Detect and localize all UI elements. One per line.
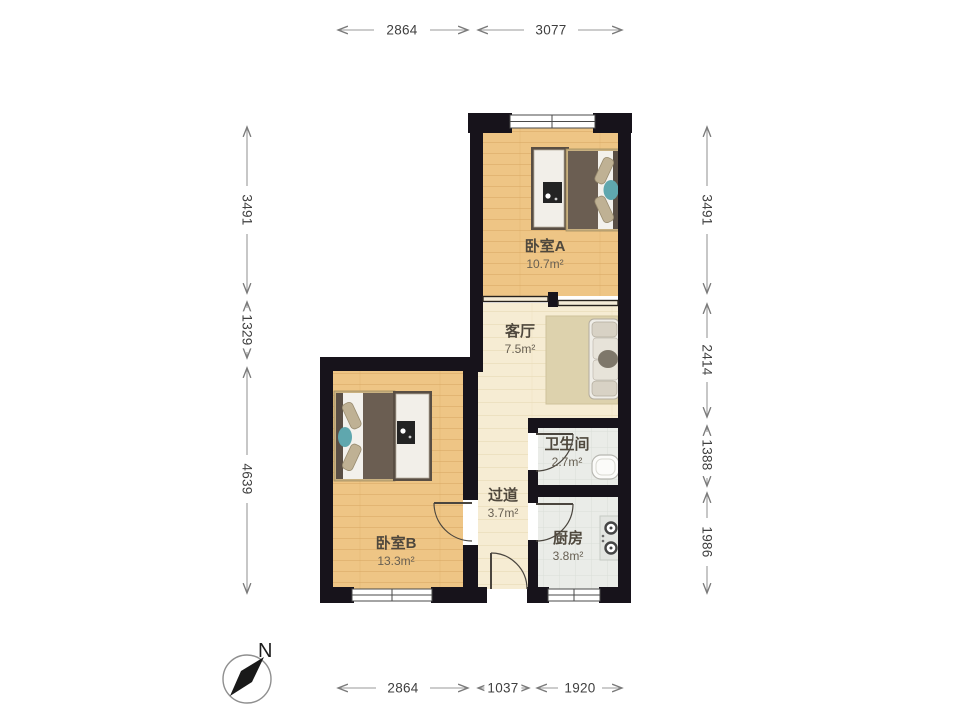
room-area-bedroom-b: 13.3m² [376,554,417,569]
bed-bedroom-a [566,149,620,231]
room-area-bedroom-a: 10.7m² [525,257,566,272]
dim-top-2: 3077 [532,23,569,38]
wardrobe-bedroom-b [393,391,432,481]
room-area-bathroom: 2.7m² [544,455,589,470]
room-name-hallway: 过道 [488,487,519,506]
room-label-living-room: 客厅 7.5m² [505,323,536,357]
room-area-kitchen: 3.8m² [553,549,584,564]
dim-left-2: 1329 [240,311,255,348]
room-name-kitchen: 厨房 [553,530,584,549]
room-name-bathroom: 卫生间 [544,436,589,455]
room-label-bedroom-b: 卧室B 13.3m² [376,535,417,569]
bathtub [592,455,619,479]
window-bedroom-a-north [510,115,595,128]
bed-bedroom-b [334,391,395,481]
dim-right-4: 1986 [700,523,715,560]
stove [600,516,619,560]
dim-right-1: 3491 [700,191,715,228]
room-label-kitchen: 厨房 3.8m² [553,530,584,564]
room-name-bedroom-a: 卧室A [525,238,566,257]
room-area-living-room: 7.5m² [505,342,536,357]
dim-left-3: 4639 [240,460,255,497]
room-name-bedroom-b: 卧室B [376,535,417,554]
window-bedroom-b-south [352,589,432,601]
dim-bottom-3: 1920 [561,681,598,696]
floor-plan-drawing [0,0,960,720]
dim-left-1: 3491 [240,191,255,228]
dim-bottom-1: 2864 [384,681,421,696]
floor-plan-canvas: 2864 3077 2864 1037 1920 3491 1329 4639 … [0,0,960,720]
north-label: N [258,640,272,663]
dim-right-3: 1388 [700,436,715,473]
dim-bottom-2: 1037 [484,681,521,696]
room-label-bedroom-a: 卧室A 10.7m² [525,238,566,272]
wardrobe-bedroom-a [531,147,569,230]
room-label-bathroom: 卫生间 2.7m² [544,436,589,470]
room-name-living-room: 客厅 [505,323,536,342]
window-kitchen-south [548,589,600,601]
dim-right-2: 2414 [700,341,715,378]
dim-top-1: 2864 [383,23,420,38]
sofa [589,319,619,399]
room-area-hallway: 3.7m² [488,506,519,521]
room-label-hallway: 过道 3.7m² [488,487,519,521]
